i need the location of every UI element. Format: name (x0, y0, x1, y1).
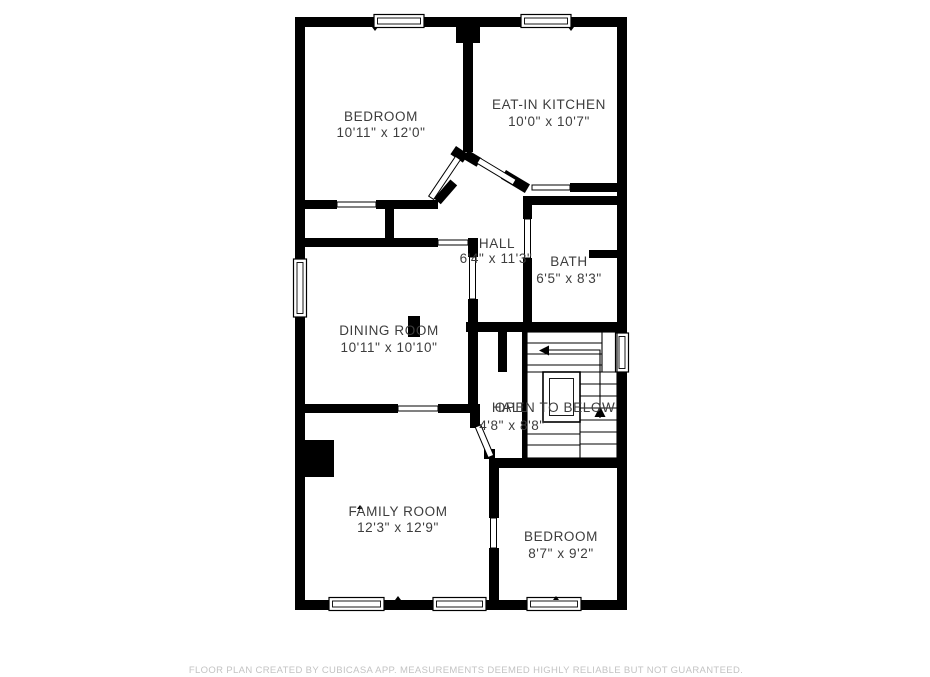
room-dims-family-room: 12'3" x 12'9" (357, 520, 439, 535)
window-top-bedroom (374, 15, 424, 28)
tick-icon (568, 27, 574, 31)
room-label-open-to-below: OPEN TO BELOW (495, 400, 616, 415)
room-label-bedroom-top: BEDROOM (344, 109, 418, 124)
wall-hall-stairs (522, 332, 527, 458)
wall-family-bedroom-lower (489, 548, 499, 600)
room-dims-hall-upper: 6'4" x 11'3" (460, 251, 533, 266)
footer-disclaimer: FLOOR PLAN CREATED BY CUBICASA APP. MEAS… (189, 665, 743, 676)
wall-bedroom-bottom-left (305, 200, 337, 209)
wall-hall-bath-lower (523, 258, 532, 330)
wall-stairs-top-stub (468, 313, 478, 322)
door-leaf-kitchen-diagonal (477, 158, 516, 185)
window-left-dining (294, 259, 307, 317)
floor-plan-page: BEDROOM 10'11" x 12'0" EAT-IN KITCHEN 10… (0, 0, 930, 677)
wall-top (295, 17, 627, 27)
window-top-kitchen (521, 15, 571, 28)
room-dims-bedroom-bottom: 8'7" x 9'2" (528, 546, 594, 561)
room-label-dining: DINING ROOM (339, 323, 439, 338)
window-bottom-family-1 (329, 598, 384, 611)
room-label-bath: BATH (550, 254, 587, 269)
room-dims-kitchen: 10'0" x 10'7" (508, 114, 590, 129)
wall-stairs-top (466, 322, 627, 332)
wall-bedroom-kitchen (463, 27, 473, 152)
wall-stairs-return (498, 332, 507, 372)
tick-icon (372, 27, 378, 31)
wall-right (617, 17, 627, 610)
wall-dining-top (305, 238, 438, 247)
wall-family-bedroom-upper (489, 468, 499, 518)
room-dims-hall-lower: 4'8" x 8'8" (479, 418, 545, 433)
room-dims-bath: 6'5" x 8'3" (536, 271, 602, 286)
room-label-bedroom-bottom: BEDROOM (524, 529, 598, 544)
staircase (527, 332, 617, 458)
door-opening-bedroom-closet (337, 202, 376, 207)
floor-plan-image: BEDROOM 10'11" x 12'0" EAT-IN KITCHEN 10… (0, 0, 930, 677)
room-label-hall-upper: HALL (479, 236, 515, 251)
wall-closet-divider (385, 209, 394, 239)
wall-dining-bottom-left (305, 404, 398, 413)
wall-hall-bath-upper (523, 205, 532, 219)
room-label-family-room: FAMILY ROOM (348, 504, 447, 519)
fireplace-block (305, 440, 334, 477)
room-dims-bedroom-top: 10'11" x 12'0" (337, 125, 426, 140)
wall-kitchen-bottom (570, 183, 627, 192)
door-opening-dining-bottom (398, 406, 438, 411)
wall-bedroom-bottom-right (376, 200, 438, 209)
door-opening-dining-hall-top (438, 240, 468, 245)
wall-bath-top (523, 196, 627, 205)
door-leaf-bedroom2 (491, 518, 497, 548)
wall-hall-bottom (489, 458, 627, 468)
wall-bath-half (589, 250, 627, 258)
window-bottom-family-2 (433, 598, 486, 611)
room-dims-dining: 10'11" x 10'10" (340, 340, 437, 355)
room-label-kitchen: EAT-IN KITCHEN (492, 97, 606, 112)
door-opening-kitchen (532, 185, 570, 190)
tick-icon (395, 596, 401, 600)
